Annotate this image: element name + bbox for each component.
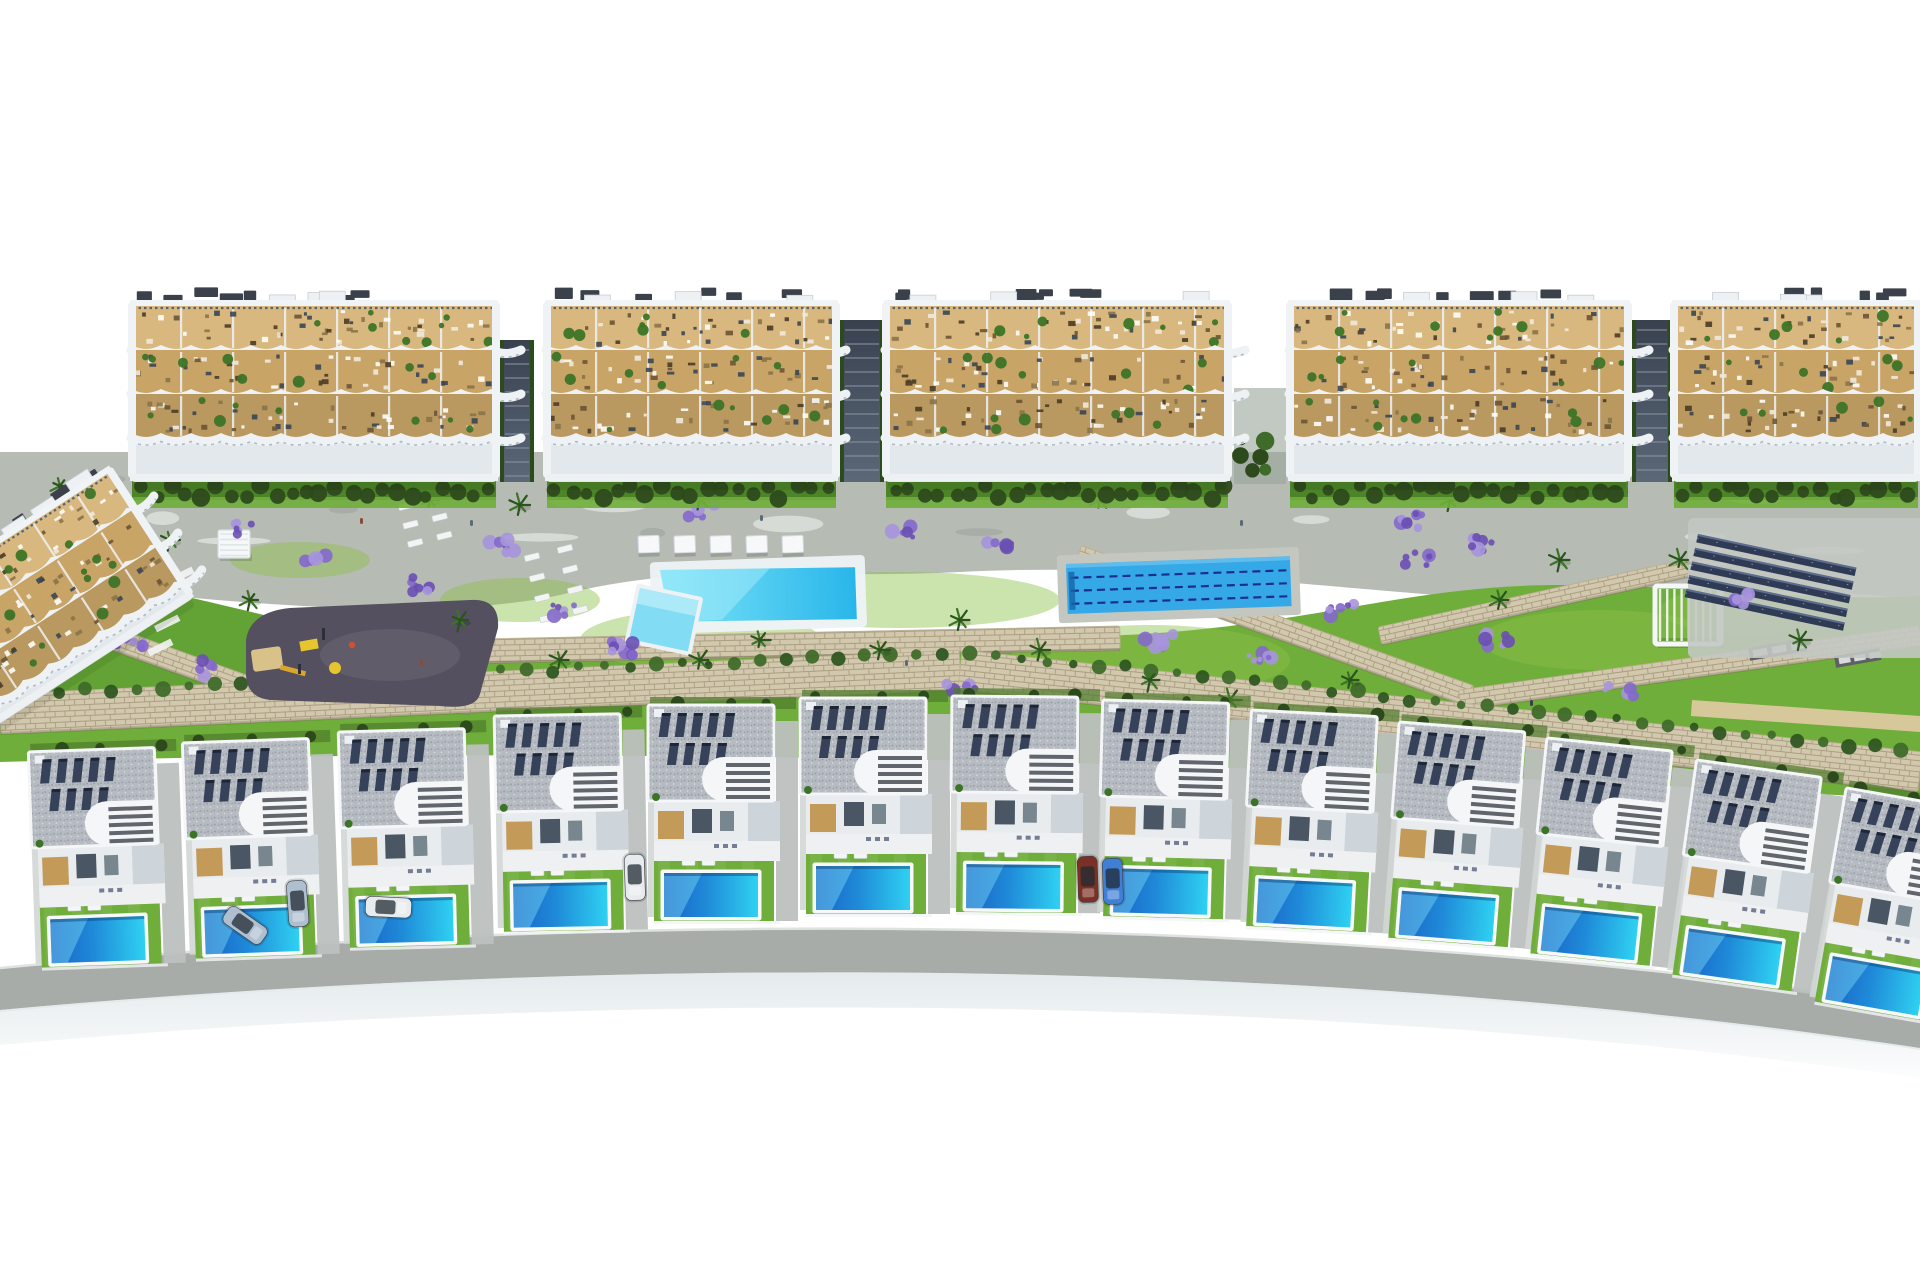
villa-wood-accent xyxy=(1109,806,1136,835)
cabana xyxy=(638,535,660,557)
villa-wood-accent xyxy=(1543,844,1572,875)
apartment-block xyxy=(1670,287,1920,490)
car xyxy=(284,878,311,930)
villa-pool xyxy=(510,878,612,931)
villa-pool xyxy=(813,863,914,914)
villa-pool xyxy=(1537,903,1643,964)
cabana xyxy=(746,535,768,557)
villa-pool xyxy=(963,861,1064,913)
villa-wood-accent xyxy=(42,857,69,886)
bottom-white xyxy=(0,1120,1920,1280)
villa-wood-accent xyxy=(506,821,532,849)
villa-pool xyxy=(1253,875,1357,931)
villa-pool xyxy=(1395,887,1500,946)
villa-wood-accent xyxy=(1254,816,1281,845)
ramp xyxy=(840,320,884,482)
playground xyxy=(246,600,498,707)
cabana xyxy=(782,535,804,557)
car xyxy=(622,852,648,903)
villa-wood-accent xyxy=(351,837,378,866)
car xyxy=(1100,856,1126,907)
apartment-block xyxy=(128,287,521,490)
villa-wood-accent xyxy=(658,811,684,839)
lap-pool xyxy=(1057,547,1301,623)
car xyxy=(363,894,414,921)
villa-pool xyxy=(661,870,762,921)
villa xyxy=(1240,701,1402,936)
apartment-block xyxy=(882,289,1245,490)
cabana xyxy=(710,535,732,557)
villa xyxy=(1382,714,1549,952)
apartment-block xyxy=(1286,288,1649,490)
render-viewport xyxy=(0,0,1920,1280)
villa-wood-accent xyxy=(1688,866,1718,897)
villa-wood-accent xyxy=(961,802,987,830)
villa-wood-accent xyxy=(810,804,836,832)
villa-wood-accent xyxy=(196,848,223,877)
ramp xyxy=(500,340,534,482)
villa-pool xyxy=(47,912,150,966)
villa-wood-accent xyxy=(1399,828,1427,858)
villa-wood-accent xyxy=(1833,894,1863,926)
site-aerial-render xyxy=(0,0,1920,1280)
car xyxy=(1075,854,1101,905)
apartment-block xyxy=(543,288,846,490)
cabana xyxy=(674,535,696,557)
villa xyxy=(1524,730,1697,971)
